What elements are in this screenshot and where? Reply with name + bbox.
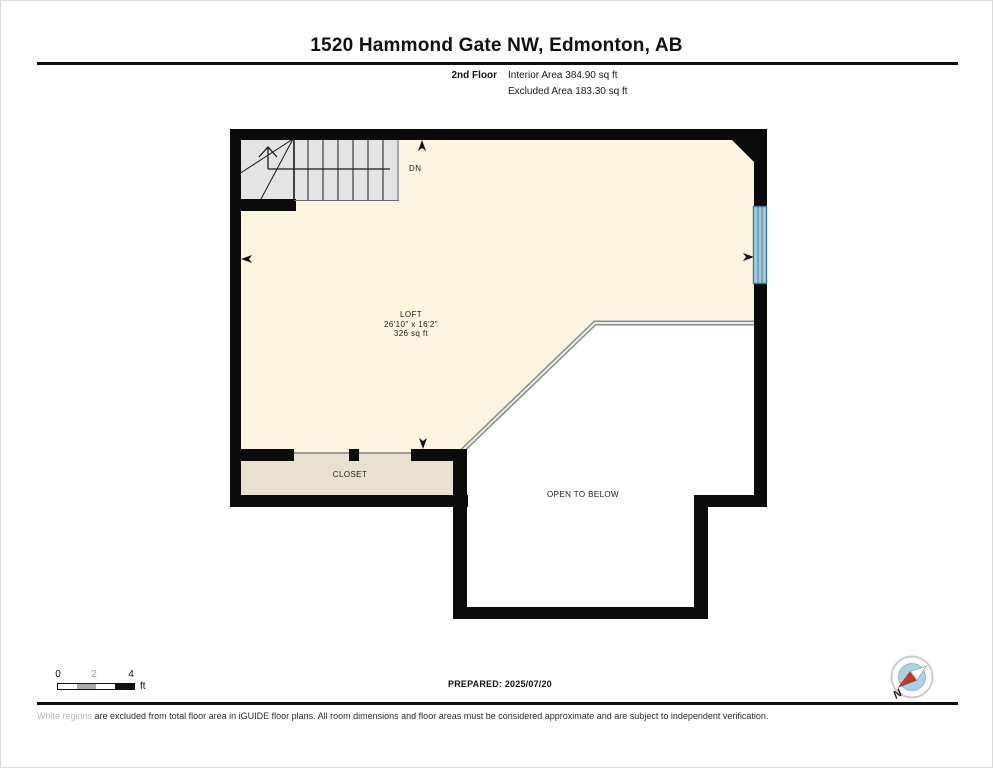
disclaimer-main-part: are excluded from total floor area in iG… — [95, 711, 769, 721]
header-divider — [37, 62, 958, 65]
scale-bar — [57, 683, 135, 690]
room-label-closet: CLOSET — [333, 470, 367, 480]
compass: N — [891, 657, 932, 702]
scale-tick-0: 0 — [55, 669, 61, 680]
window — [754, 207, 767, 284]
stair-down-label: DN — [409, 164, 422, 173]
room-label-open-to-below: OPEN TO BELOW — [547, 490, 619, 500]
loft-area: 326 sq ft — [384, 329, 438, 339]
scale-tick-2: 2 — [91, 669, 97, 680]
loft-name: LOFT — [384, 310, 438, 320]
excluded-area-text: Excluded Area 183.30 sq ft — [508, 86, 628, 97]
page-title: 1520 Hammond Gate NW, Edmonton, AB — [1, 35, 992, 57]
prepared-date: PREPARED: 2025/07/20 — [448, 679, 552, 689]
interior-area-text: Interior Area 384.90 sq ft — [508, 70, 618, 81]
disclaimer-faded-part: White regions — [37, 711, 95, 721]
floor-plan-page: N 1520 Hammond Gate NW, Edmonton, AB 2nd… — [0, 0, 993, 768]
room-label-loft: LOFT 26'10" x 16'2" 326 sq ft — [384, 310, 438, 339]
disclaimer-text: White regions are excluded from total fl… — [37, 711, 958, 721]
loft-dimensions: 26'10" x 16'2" — [384, 320, 438, 330]
scale-tick-4: 4 — [128, 669, 134, 680]
floor-label: 2nd Floor — [431, 70, 497, 81]
footer-divider — [37, 702, 958, 705]
floor-plan-svg: N — [1, 1, 993, 768]
scale-unit: ft — [140, 681, 146, 692]
